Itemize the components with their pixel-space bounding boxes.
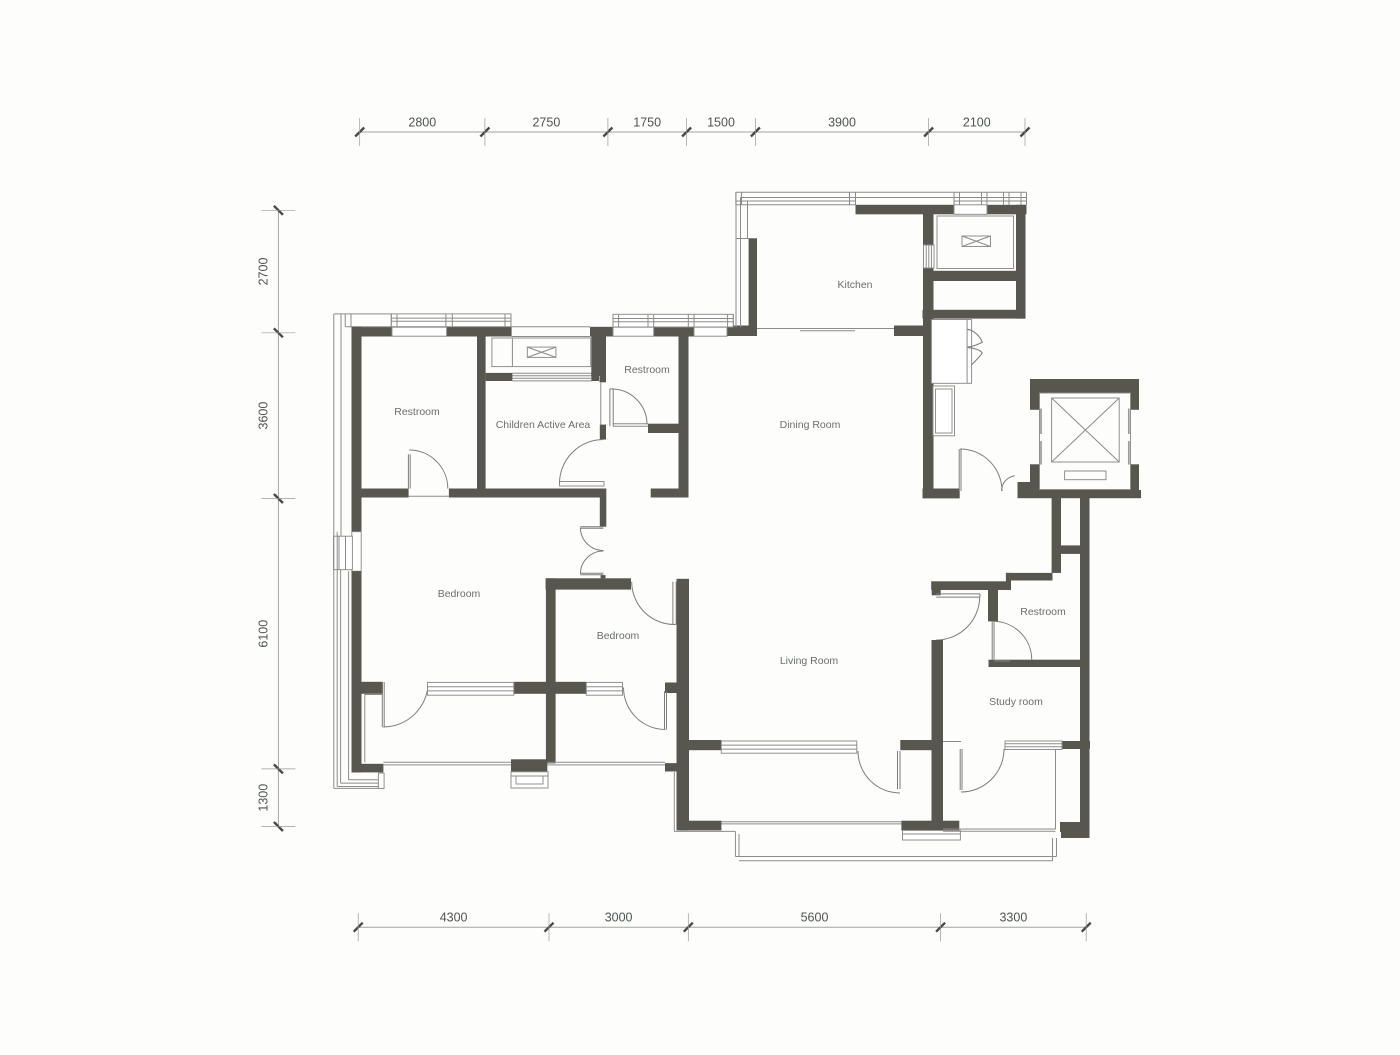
svg-text:2750: 2750 [532, 116, 560, 130]
svg-text:2800: 2800 [408, 116, 436, 130]
svg-text:Study room: Study room [989, 696, 1043, 708]
svg-text:Restroom: Restroom [394, 406, 440, 418]
svg-text:Kitchen: Kitchen [837, 279, 872, 291]
svg-text:3900: 3900 [828, 116, 856, 130]
svg-text:2100: 2100 [963, 116, 991, 130]
svg-text:4300: 4300 [440, 911, 468, 925]
svg-text:3600: 3600 [257, 402, 271, 430]
svg-text:1750: 1750 [633, 116, 661, 130]
svg-text:1300: 1300 [257, 784, 271, 812]
svg-text:3300: 3300 [999, 911, 1027, 925]
svg-text:1500: 1500 [707, 116, 735, 130]
svg-text:Restroom: Restroom [1020, 606, 1066, 618]
svg-text:5600: 5600 [801, 911, 829, 925]
svg-text:Bedroom: Bedroom [438, 588, 481, 600]
svg-text:3000: 3000 [605, 911, 633, 925]
svg-text:Children Active Area: Children Active Area [496, 419, 591, 431]
svg-text:Living Room: Living Room [780, 655, 839, 667]
svg-text:2700: 2700 [257, 258, 271, 286]
svg-text:Bedroom: Bedroom [597, 630, 640, 642]
svg-text:6100: 6100 [257, 620, 271, 648]
svg-text:Dining Room: Dining Room [780, 419, 841, 431]
svg-text:Restroom: Restroom [624, 364, 670, 376]
